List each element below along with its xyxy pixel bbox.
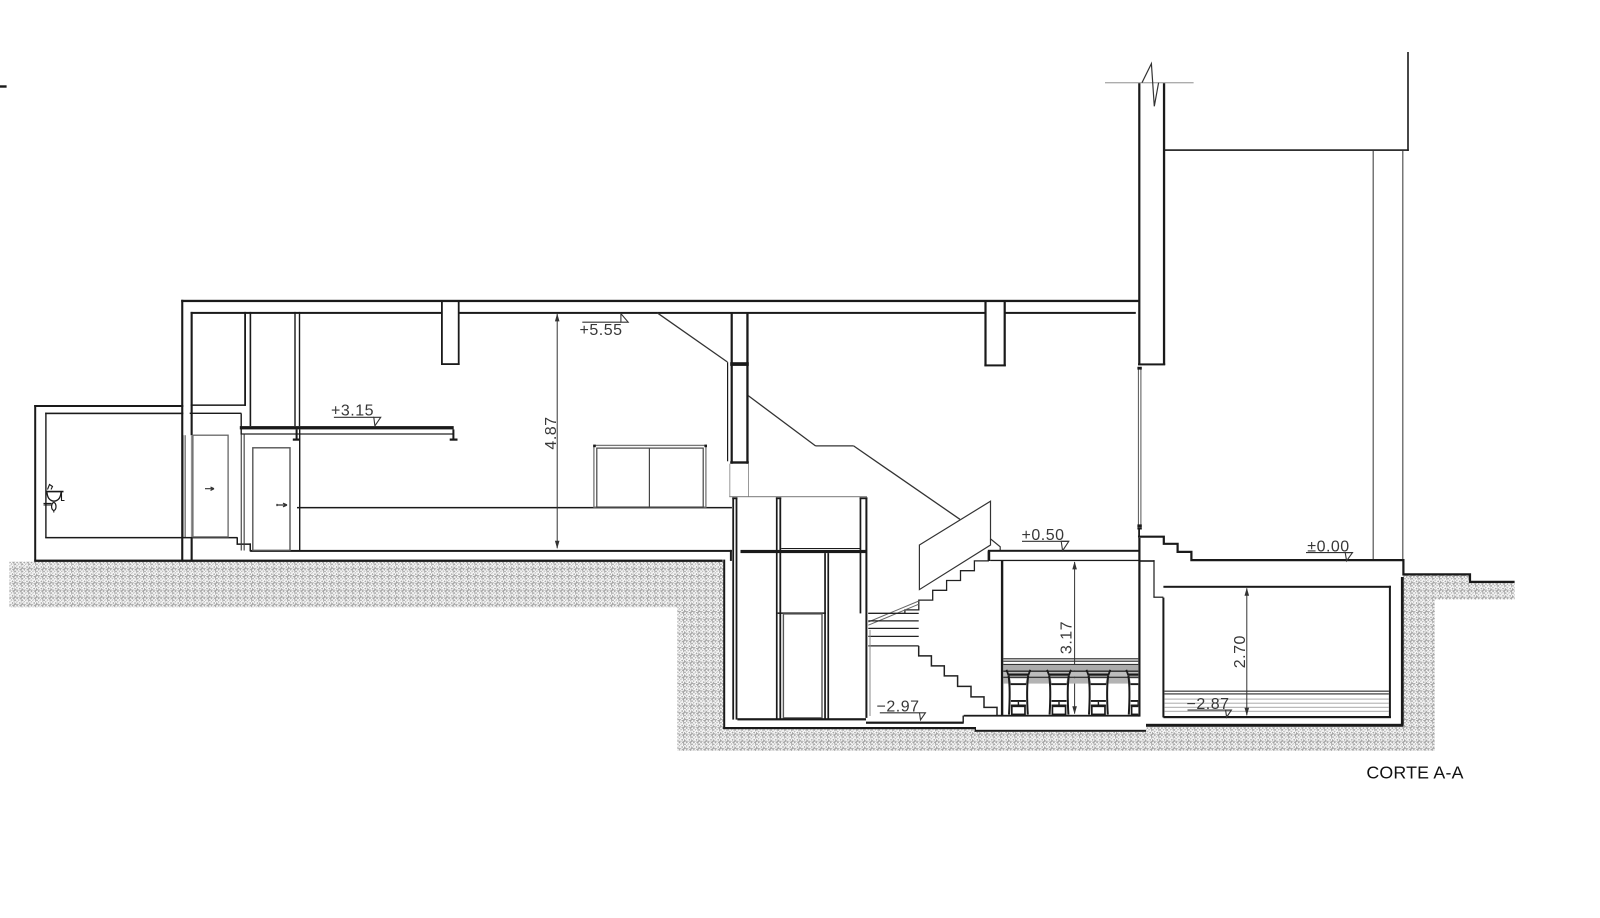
svg-text:3.17: 3.17	[1058, 621, 1075, 654]
svg-text:2.70: 2.70	[1232, 635, 1249, 668]
svg-text:+5.55: +5.55	[580, 322, 623, 339]
svg-text:4.87: 4.87	[543, 416, 560, 449]
svg-text:CORTE A-A: CORTE A-A	[1366, 763, 1463, 783]
